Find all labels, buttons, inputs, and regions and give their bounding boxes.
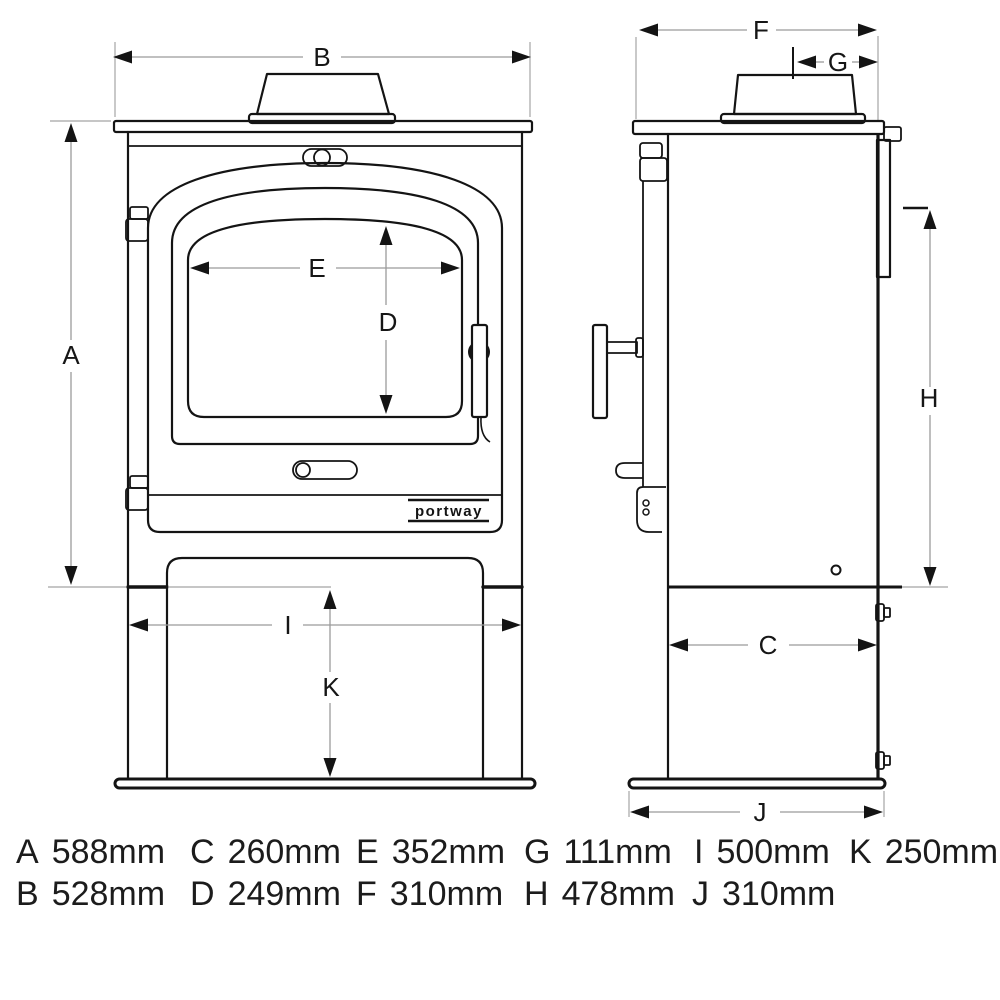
legend-item-J: J310mm — [692, 875, 835, 914]
legend-item-F: F310mm — [356, 875, 503, 914]
arrowhead — [324, 758, 337, 777]
dim-label-J: J — [754, 797, 767, 827]
flue-collar-side — [734, 75, 856, 114]
arrowhead — [924, 210, 937, 229]
dim-label-K: K — [322, 672, 340, 702]
arrowhead — [190, 262, 209, 275]
dim-K: K — [322, 590, 340, 777]
arrowhead — [630, 806, 649, 819]
legend-row-2: B528mm D249mm F310mm H478mm J310mm — [0, 875, 1000, 917]
diagram-canvas: B E — [0, 0, 1000, 830]
side-view: F G — [593, 15, 948, 827]
arrowhead — [858, 24, 877, 37]
dim-E: E — [190, 253, 460, 283]
dim-J: J — [629, 791, 884, 827]
legend-item-D: D249mm — [190, 875, 341, 914]
dim-H: H — [903, 208, 938, 586]
base-plate-front — [115, 779, 535, 788]
door-hinge-top — [126, 207, 148, 241]
dim-I: I — [129, 610, 521, 640]
legend-item-H: H478mm — [524, 875, 675, 914]
legend-item-K: K250mm — [849, 833, 998, 872]
arrowhead — [380, 395, 393, 414]
flue-collar-front — [257, 74, 389, 114]
fixing-hole — [832, 566, 841, 575]
brand-logo-text: portway — [415, 503, 483, 520]
arrowhead — [512, 51, 531, 64]
dim-C: C — [669, 630, 877, 660]
door-glass — [188, 219, 462, 417]
arrowhead — [380, 226, 393, 245]
stove-dimension-diagram: B E — [0, 0, 1000, 1000]
plinth-front — [167, 558, 483, 779]
arrowhead — [65, 123, 78, 142]
dim-label-C: C — [759, 630, 778, 660]
dim-label-G: G — [828, 47, 848, 77]
dim-D: D — [379, 226, 398, 414]
front-view: B E — [48, 42, 535, 788]
arrowhead — [324, 590, 337, 609]
arrowhead — [924, 567, 937, 586]
arrowhead — [129, 619, 148, 632]
legend-item-A: A588mm — [16, 833, 165, 872]
dim-label-H: H — [920, 383, 939, 413]
dim-label-A: A — [62, 340, 80, 370]
arrowhead — [502, 619, 521, 632]
legend-row-1: A588mm C260mm E352mm G111mm I500mm K250m… — [0, 833, 1000, 875]
arrowhead — [669, 639, 688, 652]
door-frame — [172, 188, 478, 444]
legend-item-B: B528mm — [16, 875, 165, 914]
arrowhead — [858, 639, 877, 652]
dim-label-D: D — [379, 307, 398, 337]
dim-label-E: E — [308, 253, 325, 283]
door-handle-side — [593, 325, 643, 418]
dim-B: B — [113, 42, 531, 117]
arrowhead — [859, 56, 878, 69]
arrowhead — [441, 262, 460, 275]
arrowhead — [639, 24, 658, 37]
arrowhead — [864, 806, 883, 819]
base-plate-side — [629, 779, 885, 788]
legend-item-G: G111mm — [524, 833, 672, 872]
legend-item-E: E352mm — [356, 833, 505, 872]
lower-air-vent — [293, 461, 357, 479]
legend-item-I: I500mm — [694, 833, 830, 872]
door-hinge-bottom — [126, 476, 148, 510]
arrowhead — [65, 566, 78, 585]
legend-item-C: C260mm — [190, 833, 341, 872]
brand-logo: portway — [408, 500, 489, 521]
arrowhead — [797, 56, 816, 69]
arrowhead — [113, 51, 132, 64]
air-lever-side — [616, 463, 643, 478]
dim-label-B: B — [313, 42, 330, 72]
dim-A: A — [48, 121, 126, 587]
dim-label-I: I — [284, 610, 291, 640]
dim-label-F: F — [753, 15, 769, 45]
